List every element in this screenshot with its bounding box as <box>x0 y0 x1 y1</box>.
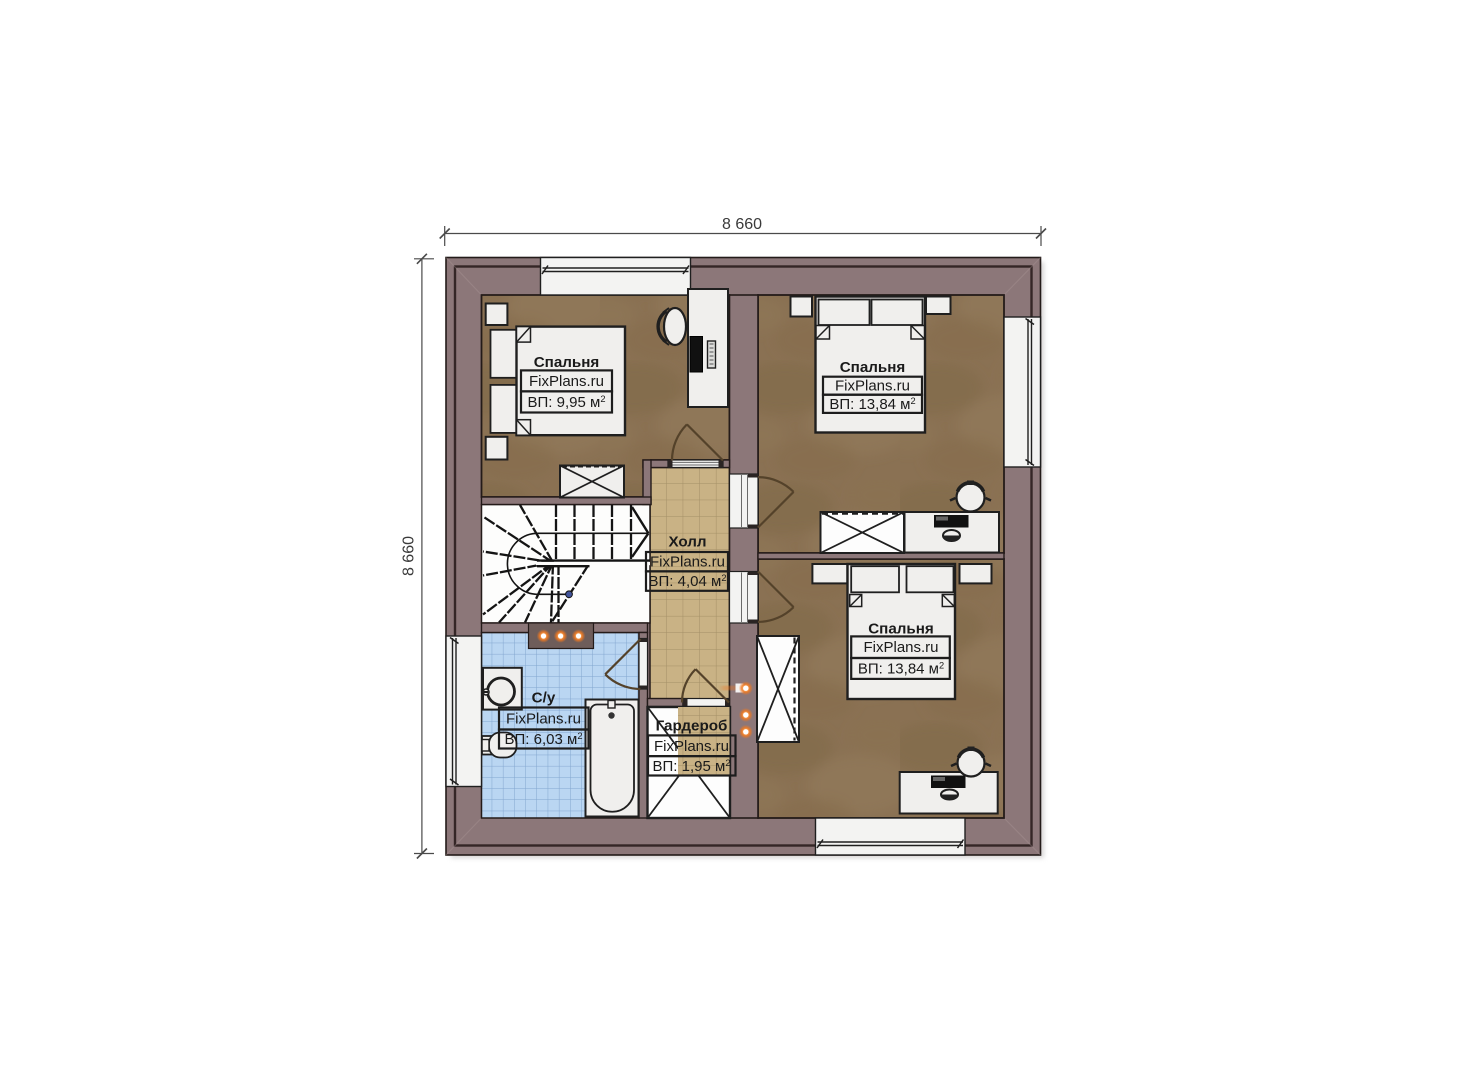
svg-text:FixPlans.ru: FixPlans.ru <box>863 639 938 656</box>
svg-text:Спальня: Спальня <box>534 354 600 371</box>
svg-text:FixPlans.ru: FixPlans.ru <box>650 554 725 571</box>
svg-text:8 660: 8 660 <box>722 216 762 233</box>
svg-text:FixPlans.ru: FixPlans.ru <box>506 711 581 728</box>
svg-text:FixPlans.ru: FixPlans.ru <box>835 378 910 395</box>
svg-text:Спальня: Спальня <box>868 621 934 638</box>
svg-text:ВП: 1,95 м2: ВП: 1,95 м2 <box>653 758 731 775</box>
svg-text:ВП: 13,84 м2: ВП: 13,84 м2 <box>829 396 915 413</box>
svg-text:ВП: 13,84 м2: ВП: 13,84 м2 <box>858 660 944 677</box>
svg-text:Гардероб: Гардероб <box>656 718 728 735</box>
svg-text:ВП: 4,04 м2: ВП: 4,04 м2 <box>649 573 727 590</box>
svg-text:Холл: Холл <box>668 534 706 551</box>
svg-text:ВП: 9,95 м2: ВП: 9,95 м2 <box>528 394 606 411</box>
svg-text:FixPlans.ru: FixPlans.ru <box>654 738 729 755</box>
svg-text:FixPlans.ru: FixPlans.ru <box>529 373 604 390</box>
svg-text:ВП: 6,03 м2: ВП: 6,03 м2 <box>505 731 583 748</box>
svg-text:Спальня: Спальня <box>840 359 906 376</box>
svg-text:8 660: 8 660 <box>401 536 418 576</box>
svg-text:С/у: С/у <box>532 690 556 707</box>
